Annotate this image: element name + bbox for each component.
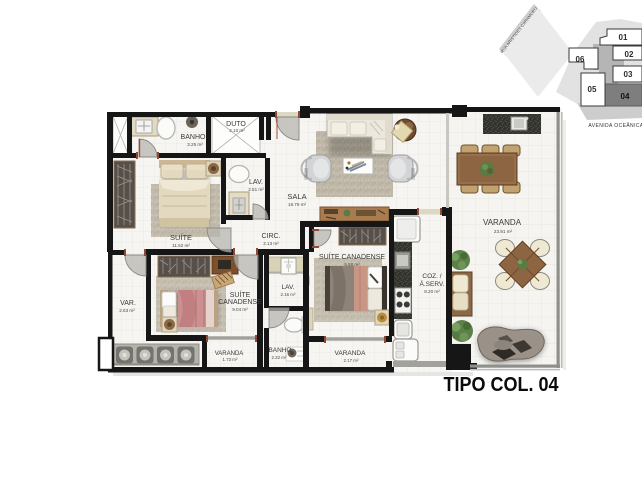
- svg-text:11.52 m²: 11.52 m²: [172, 243, 190, 248]
- svg-text:2.51 m²: 2.51 m²: [248, 187, 264, 192]
- svg-text:BANHO: BANHO: [268, 347, 291, 354]
- svg-text:9.58 m²: 9.58 m²: [344, 262, 360, 267]
- svg-text:04: 04: [621, 92, 630, 101]
- svg-text:2.16 m²: 2.16 m²: [281, 292, 296, 297]
- svg-text:2.10 m²: 2.10 m²: [229, 128, 245, 133]
- svg-text:SUÍTE CANADENSE: SUÍTE CANADENSE: [319, 252, 385, 261]
- svg-text:BANHO: BANHO: [181, 134, 206, 141]
- svg-text:CANADENSE: CANADENSE: [218, 299, 262, 306]
- svg-text:06: 06: [576, 55, 585, 64]
- svg-text:SUÍTE: SUÍTE: [170, 233, 192, 242]
- svg-text:1.73 m²: 1.73 m²: [223, 357, 238, 362]
- svg-text:COZ. /: COZ. /: [422, 273, 441, 280]
- svg-text:LAV.: LAV.: [249, 179, 263, 186]
- svg-text:Á.SERV.: Á.SERV.: [420, 279, 445, 288]
- svg-text:SUÍTE: SUÍTE: [230, 290, 251, 299]
- svg-text:2.22 m²: 2.22 m²: [272, 355, 287, 360]
- svg-text:23.91 m²: 23.91 m²: [494, 229, 513, 234]
- svg-text:3.25 m²: 3.25 m²: [187, 142, 203, 147]
- svg-text:VARANDA: VARANDA: [335, 350, 367, 357]
- svg-text:8.20 m²: 8.20 m²: [424, 289, 440, 294]
- svg-text:DUTO: DUTO: [226, 121, 246, 128]
- svg-text:2.13 m²: 2.13 m²: [263, 241, 279, 246]
- svg-text:LAV.: LAV.: [281, 284, 294, 291]
- svg-text:01: 01: [619, 33, 628, 42]
- svg-text:2.17 m²: 2.17 m²: [344, 358, 359, 363]
- svg-text:SALA: SALA: [287, 192, 306, 201]
- svg-text:03: 03: [624, 70, 633, 79]
- svg-text:9.04 m²: 9.04 m²: [232, 307, 248, 312]
- svg-text:18.79 m²: 18.79 m²: [288, 202, 307, 207]
- svg-text:VAR.: VAR.: [120, 300, 136, 307]
- svg-text:02: 02: [625, 50, 634, 59]
- svg-text:VARANDA: VARANDA: [483, 218, 522, 227]
- svg-text:2.63 m²: 2.63 m²: [119, 308, 135, 313]
- svg-text:05: 05: [588, 85, 597, 94]
- svg-text:CIRC.: CIRC.: [261, 233, 280, 240]
- svg-text:AVENIDA OCEÂNICA: AVENIDA OCEÂNICA: [588, 122, 642, 129]
- svg-text:TIPO COL. 04: TIPO COL. 04: [444, 373, 560, 396]
